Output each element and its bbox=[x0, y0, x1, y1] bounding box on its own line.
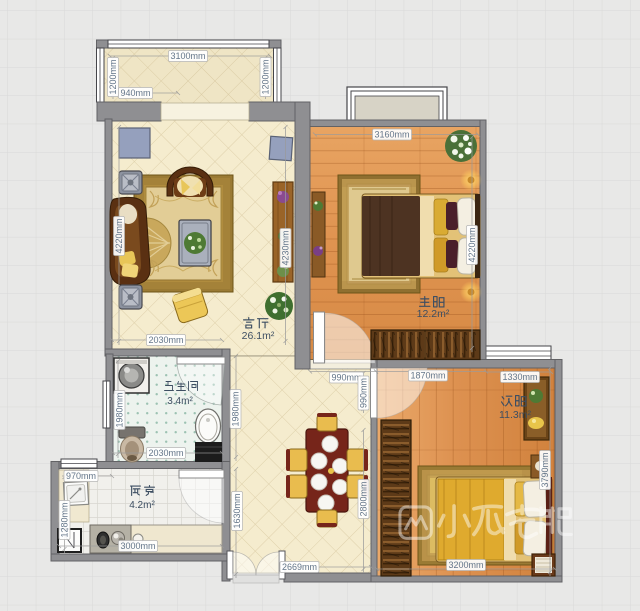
svg-text:2030mm: 2030mm bbox=[148, 448, 183, 458]
svg-text:3160mm: 3160mm bbox=[374, 130, 409, 140]
svg-text:3.4m²: 3.4m² bbox=[167, 396, 193, 407]
svg-text:1980mm: 1980mm bbox=[231, 391, 241, 426]
svg-text:4220mm: 4220mm bbox=[114, 218, 124, 253]
svg-text:990mm: 990mm bbox=[331, 373, 361, 383]
svg-text:3100mm: 3100mm bbox=[170, 51, 205, 61]
svg-text:1280mm: 1280mm bbox=[60, 502, 70, 537]
svg-text:1330mm: 1330mm bbox=[502, 372, 537, 382]
svg-text:2030mm: 2030mm bbox=[148, 335, 183, 345]
svg-text:11.3m²: 11.3m² bbox=[499, 409, 531, 421]
svg-text:4220mm: 4220mm bbox=[467, 227, 477, 262]
svg-text:2800mm: 2800mm bbox=[359, 481, 369, 516]
svg-text:3200mm: 3200mm bbox=[448, 560, 483, 570]
svg-text:4.2m²: 4.2m² bbox=[129, 500, 155, 511]
svg-text:1630mm: 1630mm bbox=[232, 493, 242, 528]
svg-text:1870mm: 1870mm bbox=[410, 371, 445, 381]
svg-text:940mm: 940mm bbox=[120, 88, 150, 98]
svg-text:2669mm: 2669mm bbox=[282, 562, 317, 572]
svg-text:1200mm: 1200mm bbox=[108, 59, 118, 94]
svg-text:3000mm: 3000mm bbox=[120, 541, 155, 551]
svg-text:3790mm: 3790mm bbox=[540, 452, 550, 487]
svg-text:1980mm: 1980mm bbox=[115, 392, 125, 427]
svg-text:970mm: 970mm bbox=[66, 471, 96, 481]
svg-text:990mm: 990mm bbox=[359, 378, 369, 408]
svg-text:4230mm: 4230mm bbox=[281, 230, 291, 265]
svg-text:12.2m²: 12.2m² bbox=[417, 308, 450, 320]
svg-text:1200mm: 1200mm bbox=[261, 59, 271, 94]
svg-text:26.1m²: 26.1m² bbox=[242, 330, 275, 342]
